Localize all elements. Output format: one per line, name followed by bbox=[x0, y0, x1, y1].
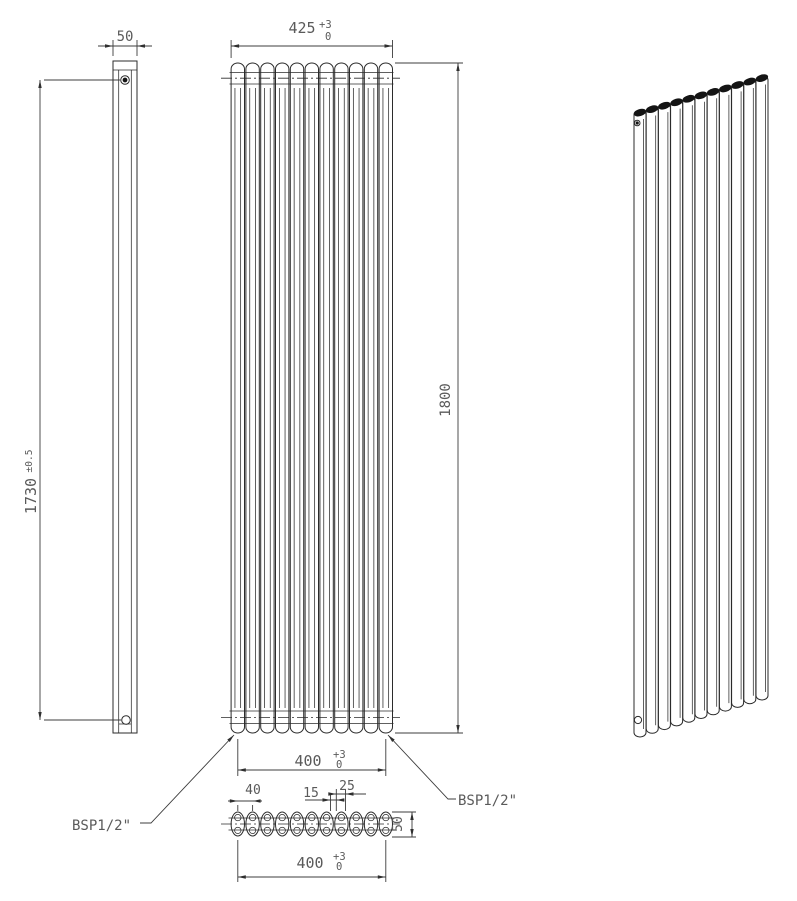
front-tube bbox=[379, 63, 392, 733]
front-tube bbox=[231, 63, 244, 733]
dim-section-span-tol-zero: 0 bbox=[336, 861, 342, 873]
radiator-drawing: 50 425 +3 0 1730 ±0.5 1800 400 +3 0 40 1… bbox=[0, 0, 797, 901]
iso-vent-hole-center bbox=[636, 122, 638, 124]
front-tube bbox=[290, 63, 303, 733]
iso-tube bbox=[658, 103, 670, 730]
isometric-view bbox=[634, 73, 769, 737]
dim-overall-height-label: 1800 bbox=[438, 383, 454, 417]
iso-tube bbox=[732, 82, 744, 707]
front-tube bbox=[350, 63, 363, 733]
bsp-right-label: BSP1/2" bbox=[458, 793, 517, 809]
side-view bbox=[113, 61, 137, 733]
front-tube bbox=[335, 63, 348, 733]
dim-tube-width-label: 25 bbox=[339, 779, 355, 794]
front-tube-array bbox=[231, 63, 392, 733]
dim-tube-depth-label: 50 bbox=[391, 816, 406, 832]
dim-tube-span-label: 400 bbox=[294, 752, 321, 770]
front-view bbox=[221, 63, 400, 733]
side-view-body bbox=[113, 61, 137, 733]
dim-centers-height-tolerance: ±0.5 bbox=[24, 450, 35, 473]
iso-tube bbox=[671, 100, 683, 726]
dim-overall-width-label: 425 bbox=[288, 19, 315, 37]
dim-overall-width-tol-plus: +3 bbox=[319, 19, 332, 31]
iso-connection-hole bbox=[634, 716, 641, 723]
bsp-left-label: BSP1/2" bbox=[72, 818, 131, 834]
dim-side-width-label: 50 bbox=[117, 29, 134, 45]
iso-tube bbox=[695, 93, 707, 719]
dim-section-span-label: 400 bbox=[296, 854, 323, 872]
iso-tube bbox=[683, 96, 695, 722]
iso-tube bbox=[719, 86, 731, 711]
technical-drawing-canvas: 50 425 +3 0 1730 ±0.5 1800 400 +3 0 40 1… bbox=[0, 0, 797, 901]
iso-tube bbox=[646, 107, 658, 734]
front-tube bbox=[261, 63, 274, 733]
bsp-left-leader bbox=[140, 735, 234, 823]
bsp-right-leader bbox=[388, 735, 456, 799]
iso-tube bbox=[744, 79, 756, 704]
connection-bottom bbox=[122, 716, 131, 725]
iso-tube bbox=[707, 89, 719, 715]
iso-tube bbox=[634, 110, 646, 737]
front-tube bbox=[364, 63, 377, 733]
section-view bbox=[221, 812, 400, 836]
dim-tube-span-tol-zero: 0 bbox=[336, 759, 342, 771]
dim-tube-pitch-label: 40 bbox=[245, 783, 261, 798]
iso-tube-array bbox=[634, 73, 769, 737]
front-tube bbox=[320, 63, 333, 733]
dim-centers-height-label: 1730 bbox=[22, 478, 40, 514]
dim-overall-width-tol-zero: 0 bbox=[325, 31, 331, 43]
front-tube bbox=[246, 63, 259, 733]
front-tube bbox=[276, 63, 289, 733]
front-tube bbox=[305, 63, 318, 733]
dim-tube-gap-label: 15 bbox=[303, 786, 319, 801]
iso-tube bbox=[756, 76, 768, 701]
air-vent-center bbox=[123, 78, 127, 82]
